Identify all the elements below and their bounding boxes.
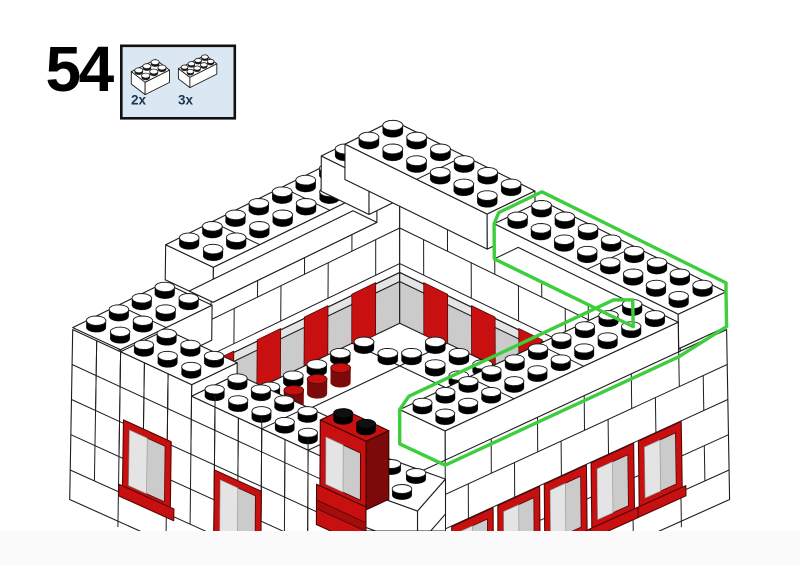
svg-text:3x: 3x xyxy=(178,93,194,108)
svg-text:2x: 2x xyxy=(131,93,147,108)
svg-text:54: 54 xyxy=(46,33,115,105)
